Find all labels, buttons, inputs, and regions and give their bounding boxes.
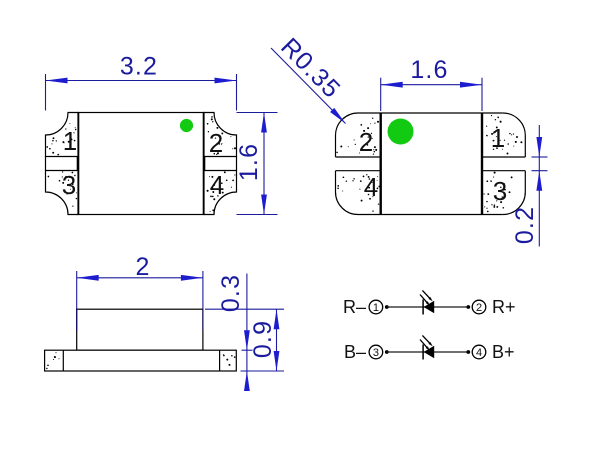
svg-text:0.3: 0.3: [217, 274, 245, 312]
svg-text:1: 1: [63, 126, 77, 156]
svg-text:B–: B–: [344, 342, 366, 362]
svg-text:3.2: 3.2: [120, 53, 158, 81]
svg-text:R0.35: R0.35: [275, 33, 346, 104]
svg-text:R+: R+: [492, 297, 516, 317]
svg-text:0.9: 0.9: [249, 320, 277, 358]
svg-text:2: 2: [359, 127, 373, 157]
svg-text:1.6: 1.6: [410, 56, 448, 84]
svg-text:1: 1: [491, 123, 505, 153]
svg-text:4: 4: [476, 347, 482, 359]
svg-text:2: 2: [476, 302, 482, 314]
svg-text:3: 3: [62, 170, 76, 200]
svg-text:R–: R–: [343, 297, 366, 317]
svg-text:4: 4: [364, 172, 378, 202]
svg-text:2: 2: [209, 128, 223, 158]
svg-text:1.6: 1.6: [235, 143, 263, 181]
svg-text:0.2: 0.2: [511, 206, 539, 244]
svg-text:3: 3: [373, 347, 379, 359]
svg-text:3: 3: [493, 176, 507, 206]
svg-text:B+: B+: [492, 342, 515, 362]
svg-text:4: 4: [210, 170, 224, 200]
svg-text:2: 2: [135, 253, 150, 281]
svg-text:1: 1: [373, 302, 379, 314]
